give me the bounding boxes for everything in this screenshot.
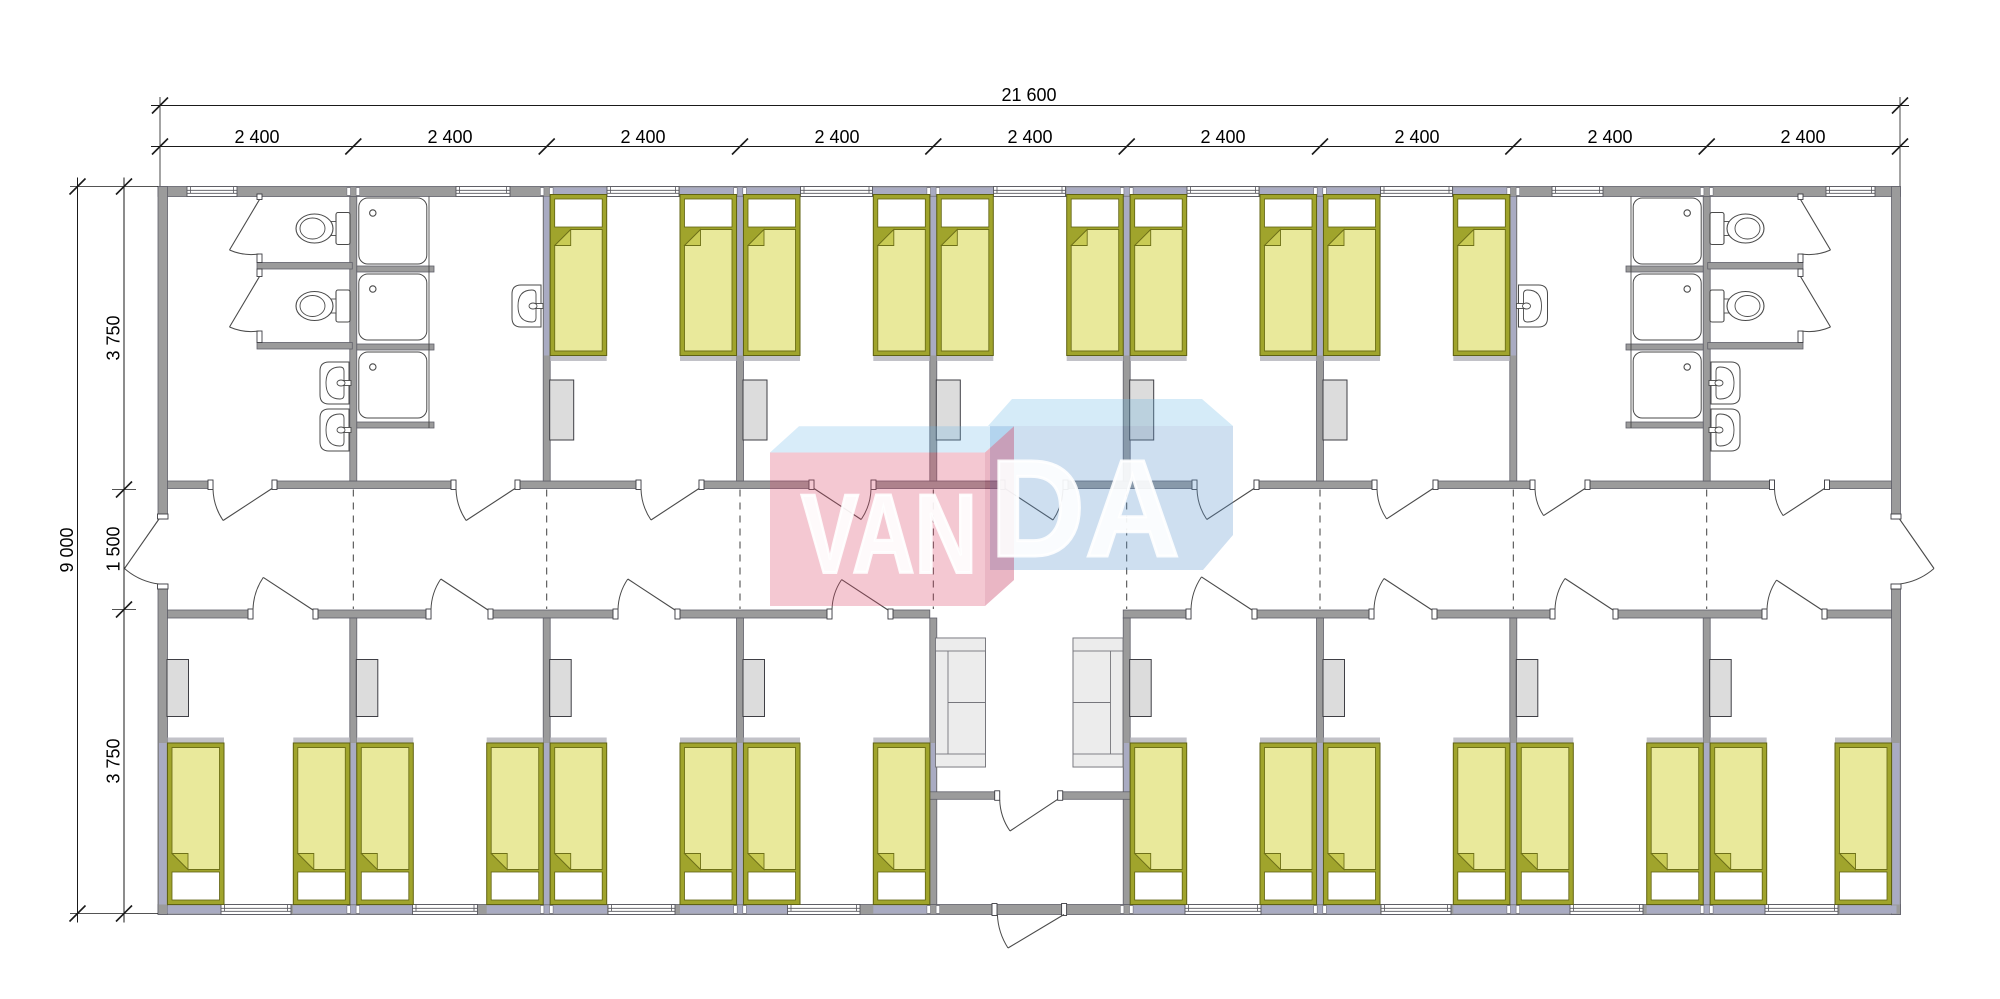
svg-text:1 500: 1 500	[104, 526, 124, 571]
svg-text:DA: DA	[990, 432, 1180, 586]
svg-text:2 400: 2 400	[814, 127, 859, 147]
svg-text:21 600: 21 600	[1001, 85, 1056, 105]
svg-text:3 750: 3 750	[104, 738, 124, 783]
svg-text:3 750: 3 750	[104, 315, 124, 360]
svg-text:2 400: 2 400	[234, 127, 279, 147]
svg-text:2 400: 2 400	[1780, 127, 1825, 147]
svg-text:2 400: 2 400	[427, 127, 472, 147]
svg-text:2 400: 2 400	[1587, 127, 1632, 147]
svg-text:2 400: 2 400	[1200, 127, 1245, 147]
svg-text:VAN: VAN	[801, 472, 977, 597]
svg-text:2 400: 2 400	[1394, 127, 1439, 147]
svg-text:2 400: 2 400	[1007, 127, 1052, 147]
svg-text:9 000: 9 000	[57, 527, 77, 572]
svg-text:2 400: 2 400	[620, 127, 665, 147]
